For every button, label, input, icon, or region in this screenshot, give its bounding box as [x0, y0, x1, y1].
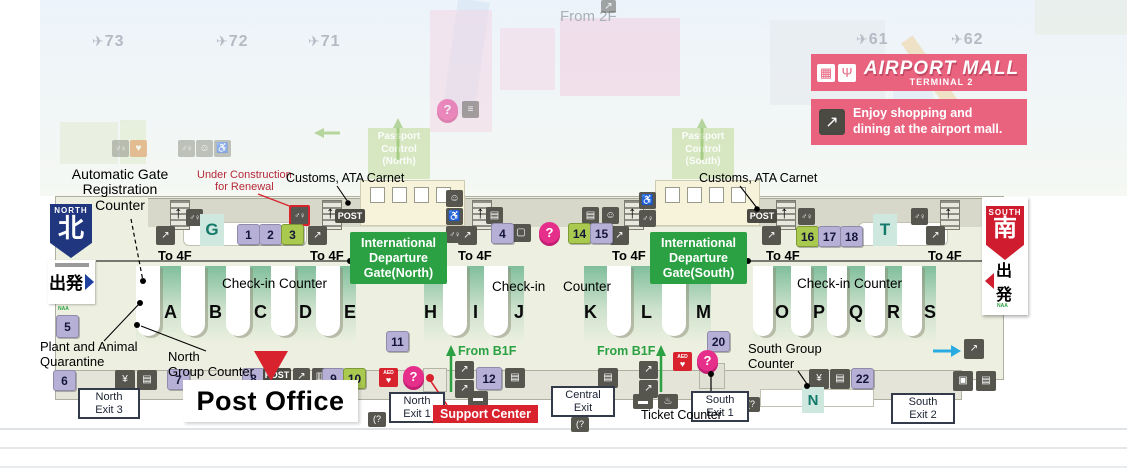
to-4f-label: To 4F [310, 248, 344, 263]
exit-line: North [83, 391, 135, 404]
label-line: Counter [58, 198, 182, 213]
curbside-line [0, 466, 1127, 468]
escalator-icon: ↗ [762, 226, 781, 245]
customs-ata-carnet-label-south: Customs, ATA Carnet [699, 171, 817, 185]
to-4f-label: To 4F [612, 248, 646, 263]
passport-line: (South) [672, 156, 734, 169]
label-line: South Group [748, 342, 822, 357]
spot-6: 6 [53, 370, 76, 391]
plane-icon: ✈ [856, 31, 869, 47]
phone-inquiry-icon: (? [571, 417, 589, 432]
counter-letter: S [924, 302, 936, 344]
up-arrow-icon: ↑ [780, 203, 789, 223]
promo-line: dining at the airport mall. [853, 122, 1002, 138]
wheelchair-icon: ♿ [446, 208, 463, 225]
ticket-counter-label: Ticket Counter [641, 408, 722, 422]
passport-line: Passport [672, 131, 734, 144]
checkin-counter-desk [136, 266, 160, 336]
checkin-counter-desk [902, 266, 922, 336]
phone-inquiry-icon: (? [368, 412, 386, 427]
counter-letter: I [473, 302, 478, 344]
baby-care-icon: ☺ [196, 140, 213, 157]
shop-icon: ▦ [817, 64, 835, 82]
intl-line: Gate(South) [650, 266, 747, 281]
aed-icon: AED♥ [673, 352, 692, 371]
counter-letter: A [164, 302, 177, 344]
support-center-label: Support Center [433, 405, 538, 423]
water-fountain-icon: ♨ [658, 394, 678, 409]
smoking-icon: ▬ [468, 391, 488, 406]
escalator-icon: ↗ [639, 361, 658, 379]
counter-letter: K [584, 302, 597, 344]
restroom-icon: ♂♀ [798, 208, 815, 225]
counter-letter: R [887, 302, 900, 344]
support-center-spot [423, 368, 447, 392]
bg-block [1035, 0, 1127, 35]
plane-icon: ✈ [951, 31, 964, 47]
chevron-left-icon [985, 273, 994, 289]
south-exit-2: SouthExit 2 [891, 393, 955, 424]
restroom-under-construction-icon: ♂♀ [289, 205, 310, 226]
intl-line: Gate(North) [350, 266, 447, 281]
information-icon: ? [403, 366, 424, 387]
gate-62: ✈62 [951, 31, 984, 49]
counter-letter: C [254, 302, 267, 344]
north-exit-3: NorthExit 3 [78, 388, 140, 419]
atm-icon: ▤ [976, 371, 996, 391]
counter-letter: O [775, 302, 789, 344]
chevron-right-icon [85, 274, 94, 290]
intl-line: Departure [350, 251, 447, 266]
promo-line: Enjoy shopping and [853, 106, 1002, 122]
under-construction-label: Under Construction for Renewal [197, 169, 292, 193]
escalator-icon: ↗ [156, 226, 175, 245]
wheelchair-icon: ♿ [214, 140, 231, 157]
internet-pc-icon: ▢ [511, 224, 531, 242]
from-b1f-label-left: From B1F [458, 344, 516, 358]
checkin-counter-desk [607, 266, 631, 336]
customs-booth [709, 187, 724, 203]
post-office-callout: Post Office [183, 380, 358, 422]
spot-16: 16 [796, 226, 819, 247]
checkin-counter-label-south: Check-in Counter [797, 276, 902, 291]
mall-subtitle: TERMINAL 2 [862, 78, 1021, 87]
mall-promo-banner: ↗ Enjoy shopping and dining at the airpo… [811, 99, 1027, 145]
plane-icon: ✈ [308, 33, 321, 49]
customs-booth [687, 187, 702, 203]
bg-block [60, 122, 118, 164]
spot-12: 12 [476, 367, 502, 390]
exit-line: Exit 3 [83, 404, 135, 417]
label-line: Group Counter [168, 365, 254, 380]
plant-quarantine-label: Plant and Animal Quarantine [40, 340, 138, 370]
mall-title: AIRPORT MALL [862, 59, 1021, 78]
restroom-icon: ♂♀ [639, 210, 656, 227]
gate-72: ✈72 [216, 33, 249, 51]
escalator-icon: ↗ [819, 109, 845, 135]
departures-sign-south: 出発 [985, 264, 1027, 298]
sign-fineprint [55, 263, 89, 267]
restroom-icon: ♂♀ [911, 208, 928, 225]
label-line: Under Construction [197, 169, 292, 181]
plane-icon: ✈ [92, 33, 105, 49]
to-4f-label: To 4F [158, 248, 192, 263]
customs-booth-area-south [655, 180, 760, 226]
customs-booth [414, 187, 429, 203]
customs-booth [665, 187, 680, 203]
label-line: for Renewal [197, 181, 292, 193]
escalator-icon: ↗ [308, 226, 327, 245]
counter-letter-N: N [802, 387, 824, 413]
counter-letter: E [344, 302, 356, 344]
checkin-counter-desk [181, 266, 205, 336]
counter-letter: Q [849, 302, 863, 344]
spot-20: 20 [707, 331, 730, 352]
south-sign-ja: 南 [986, 217, 1024, 241]
spot-2: 2 [259, 224, 282, 245]
north-group-counter-label: North Group Counter [168, 350, 254, 380]
counter-letter: B [209, 302, 222, 344]
label-line: Automatic Gate [58, 167, 182, 182]
to-4f-label: To 4F [458, 248, 492, 263]
currency-exchange-icon: ¥ [115, 370, 135, 390]
checkin-counter-desk [753, 266, 773, 336]
terminal2-3f-departure-floor-map: ✈73 ✈72 ✈71 ✈61 ✈62 From 2F ↗ ♂♀ ♥ ♂♀ ☺ … [0, 0, 1127, 476]
departures-ja: 出発 [996, 257, 1027, 305]
up-arrow-icon: ↑ [628, 203, 637, 223]
checkin-counter-desk [484, 266, 508, 336]
currency-exchange-icon: ¥ [809, 369, 829, 389]
up-arrow-icon: ↑ [944, 203, 953, 223]
passport-line: (North) [368, 156, 430, 169]
naa-logo: NAA [997, 303, 1008, 309]
intl-departure-gate-north: International Departure Gate(North) [350, 232, 447, 284]
gate-71: ✈71 [308, 33, 341, 51]
spot-3: 3 [281, 224, 304, 245]
intl-line: International [350, 236, 447, 251]
intl-line: Departure [650, 251, 747, 266]
elevator-icon: ▣ [953, 371, 973, 391]
from-b1f-label-right: From B1F [597, 344, 655, 358]
departures-sign-north: 出発 [48, 260, 95, 304]
intl-departure-gate-south: International Departure Gate(South) [650, 232, 747, 284]
restroom-icon: ♂♀ [178, 140, 195, 157]
exit-line: Central [556, 389, 610, 402]
escalator-icon: ↗ [455, 361, 474, 379]
departures-ja: 出発 [49, 269, 83, 294]
spot-17: 17 [818, 226, 841, 247]
intl-line: International [650, 236, 747, 251]
smoking-icon: ▬ [633, 394, 653, 409]
post-office-title: Post Office [196, 386, 344, 417]
atm-icon: ▤ [505, 368, 525, 388]
gate-61: ✈61 [856, 31, 889, 49]
counter-letter-T: T [873, 214, 897, 246]
up-arrow-icon: ↑ [326, 203, 335, 223]
spot-15: 15 [590, 223, 613, 244]
exit-line: Exit [556, 402, 610, 415]
naa-logo: NAA [58, 306, 69, 312]
spot-4: 4 [491, 223, 514, 244]
spot-18: 18 [840, 226, 863, 247]
gate-73: ✈73 [92, 33, 125, 51]
north-sign-ja: 北 [50, 215, 92, 241]
restroom-icon: ♂♀ [446, 226, 463, 243]
stairs-icon: ≡ [462, 101, 479, 118]
spot-1: 1 [237, 224, 260, 245]
atm-icon: ▤ [486, 207, 503, 224]
exit-line: South [896, 396, 950, 409]
post-office-marker-icon [254, 351, 288, 381]
counter-letter: H [424, 302, 437, 344]
information-icon: ? [539, 222, 560, 243]
south-group-counter-label: South Group Counter [748, 342, 822, 372]
escalator-icon: ↗ [926, 226, 945, 245]
passport-line: Control [368, 144, 430, 157]
curbside-line [0, 428, 1127, 430]
baby-care-icon: ☺ [446, 190, 463, 207]
bg-block [500, 28, 555, 90]
customs-booth [392, 187, 407, 203]
aed-icon: AED♥ [379, 368, 398, 387]
escalator-icon: ↗ [601, 0, 616, 13]
customs-booth [370, 187, 385, 203]
spot-5: 5 [56, 315, 79, 338]
wheelchair-icon: ♿ [639, 192, 656, 209]
checkin-counter-label-north: Check-in Counter [222, 276, 327, 291]
counter-letter: J [514, 302, 524, 344]
checkin-label-mid-a: Check-in [492, 279, 545, 294]
counter-letter: P [813, 302, 825, 344]
post-office-icon: POST [335, 209, 365, 223]
post-office-icon: POST [747, 209, 777, 223]
label-line: Registration [58, 182, 182, 197]
spot-14: 14 [568, 223, 591, 244]
label-line: Counter [748, 357, 822, 372]
bg-block [560, 18, 680, 96]
central-exit: CentralExit [551, 386, 615, 417]
restroom-icon: ♂♀ [112, 140, 129, 157]
atm-icon: ▤ [137, 370, 157, 390]
exit-line: Exit 2 [896, 409, 950, 422]
aed-icon: ♥ [130, 140, 147, 157]
to-4f-label: To 4F [766, 248, 800, 263]
counter-letter-G: G [200, 214, 224, 246]
spot-11: 11 [386, 331, 409, 352]
atm-icon: ▤ [582, 207, 599, 224]
airport-mall-banner: ▦ Ψ AIRPORT MALL TERMINAL 2 [811, 54, 1027, 91]
plane-icon: ✈ [216, 33, 229, 49]
information-icon: ? [697, 350, 718, 371]
atm-icon: ▤ [830, 369, 850, 389]
information-icon: ? [437, 99, 458, 120]
escalator-icon: ↗ [964, 339, 984, 359]
label-line: Plant and Animal [40, 340, 138, 355]
restaurant-icon: Ψ [838, 64, 856, 82]
checkin-label-mid-b: Counter [563, 279, 611, 294]
counter-letter: L [641, 302, 652, 344]
exit-line: South [696, 394, 744, 407]
passport-line: Passport [368, 131, 430, 144]
to-4f-label: To 4F [928, 248, 962, 263]
counter-letter: D [299, 302, 312, 344]
label-line: Quarantine [40, 355, 138, 370]
baby-care-icon: ☺ [602, 207, 619, 224]
customs-ata-carnet-label-north: Customs, ATA Carnet [286, 171, 404, 185]
atm-icon: ▤ [598, 368, 618, 388]
curbside-line [0, 447, 1127, 449]
passport-line: Control [672, 144, 734, 157]
up-arrow-icon: ↑ [476, 203, 485, 223]
automatic-gate-label: Automatic Gate Registration Counter [58, 167, 182, 213]
label-line: North [168, 350, 254, 365]
spot-22: 22 [851, 368, 874, 389]
customs-booth [731, 187, 746, 203]
